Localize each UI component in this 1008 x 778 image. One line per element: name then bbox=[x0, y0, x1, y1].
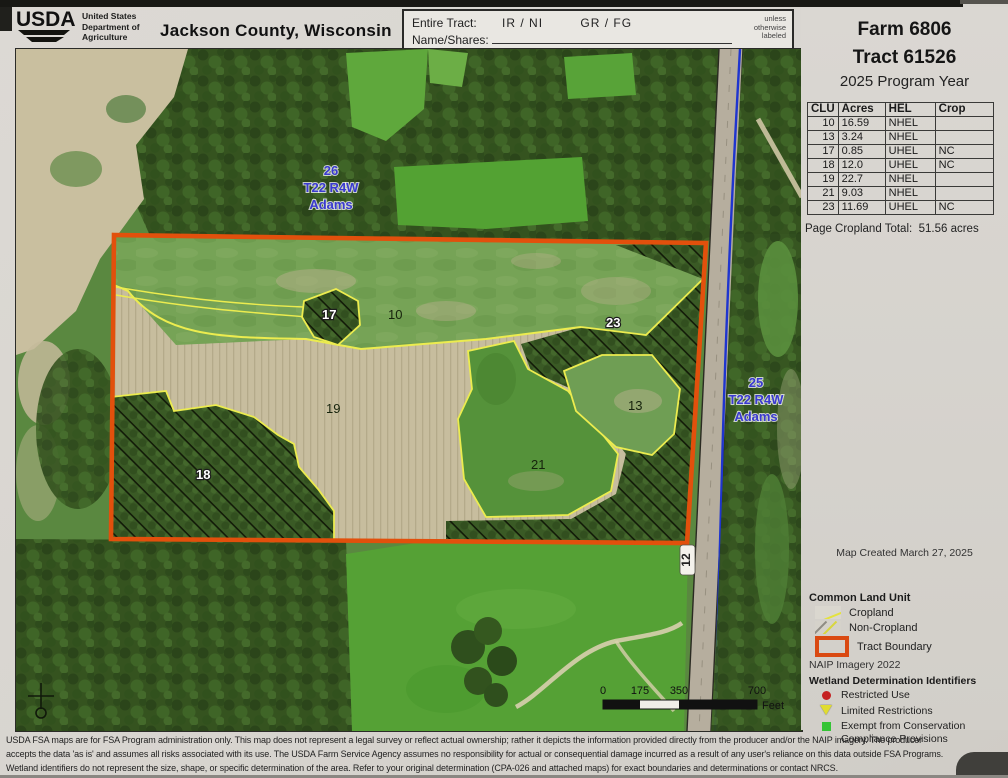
clu-table: CLU Acres HEL Crop 1016.59NHEL 133.24NHE… bbox=[807, 102, 994, 215]
dept-line-1: United States bbox=[82, 11, 140, 22]
naip-imagery-note: NAIP Imagery 2022 bbox=[809, 659, 1005, 671]
legend-item-cropland: Cropland bbox=[815, 606, 1005, 619]
sidebar: Farm 6806 Tract 61526 2025 Program Year … bbox=[801, 7, 1008, 730]
legend-item-non-cropland: Non-Cropland bbox=[815, 621, 1005, 634]
clu-row: 219.03NHEL bbox=[808, 187, 994, 201]
legend-clu-title: Common Land Unit bbox=[809, 592, 1005, 604]
page-cropland-total: Page Cropland Total: 51.56 acres bbox=[805, 223, 979, 235]
photo-edge-top bbox=[0, 0, 963, 7]
county-title: Jackson County, Wisconsin bbox=[160, 21, 392, 41]
col-acres: Acres bbox=[838, 103, 885, 117]
disclaimer-line-2: accepts the data 'as is' and assumes all… bbox=[6, 748, 1006, 762]
svg-text:Adams: Adams bbox=[309, 197, 352, 212]
field-north-2 bbox=[394, 157, 588, 229]
usda-dept-lines: United States Department of Agriculture bbox=[82, 11, 140, 43]
forest-southwest bbox=[16, 539, 354, 731]
svg-text:Adams: Adams bbox=[734, 409, 777, 424]
header: USDA United States Department of Agricul… bbox=[0, 7, 800, 48]
aerial-map-svg: 12 26 T22 R4W Adams 25 T22 R4W Adams 10 … bbox=[16, 49, 802, 731]
disclaimer: USDA FSA maps are for FSA Program admini… bbox=[6, 734, 1006, 776]
field-label-21: 21 bbox=[531, 457, 545, 472]
non-cropland-swatch bbox=[815, 621, 841, 634]
usda-logo-text: USDA bbox=[16, 8, 76, 31]
field-label-18: 18 bbox=[196, 467, 210, 482]
col-hel: HEL bbox=[885, 103, 935, 117]
cropland-label: Cropland bbox=[849, 607, 894, 619]
tract-number: Tract 61526 bbox=[801, 47, 1008, 69]
legend-item-limited-restrictions: Limited Restrictions bbox=[819, 705, 1005, 718]
clu-row: 170.85UHELNC bbox=[808, 145, 994, 159]
name-shares-label: Name/Shares: bbox=[412, 33, 489, 47]
aerial-map: 12 26 T22 R4W Adams 25 T22 R4W Adams 10 … bbox=[15, 48, 803, 732]
svg-text:350: 350 bbox=[670, 685, 688, 697]
dept-line-2: Department of bbox=[82, 22, 140, 33]
scale-unit-label: Feet bbox=[762, 700, 784, 712]
limited-restrictions-triangle-icon bbox=[819, 705, 833, 718]
svg-text:T22 R4W: T22 R4W bbox=[304, 180, 360, 195]
col-crop: Crop bbox=[935, 103, 993, 117]
svg-text:700: 700 bbox=[748, 685, 766, 697]
disclaimer-line-1: USDA FSA maps are for FSA Program admini… bbox=[6, 734, 1006, 748]
restricted-use-label: Restricted Use bbox=[841, 689, 910, 701]
road-12-label: 12 bbox=[679, 553, 693, 567]
clu-row: 2311.69UHELNC bbox=[808, 201, 994, 215]
tract-boundary-swatch bbox=[815, 636, 849, 657]
field-label-13: 13 bbox=[628, 398, 642, 413]
svg-text:T22 R4W: T22 R4W bbox=[729, 392, 785, 407]
disclaimer-line-3: Wetland identifiers do not represent the… bbox=[6, 762, 1006, 776]
clu-row: 1016.59NHEL bbox=[808, 117, 994, 131]
dept-line-3: Agriculture bbox=[82, 32, 140, 43]
tract-boundary-label: Tract Boundary bbox=[857, 641, 932, 653]
non-cropland-label: Non-Cropland bbox=[849, 622, 917, 634]
field-label-10: 10 bbox=[388, 307, 402, 322]
svg-text:0: 0 bbox=[600, 685, 606, 697]
legend-item-tract-boundary: Tract Boundary bbox=[815, 636, 1005, 657]
clu-table-header-row: CLU Acres HEL Crop bbox=[808, 103, 994, 117]
usda-logo: USDA bbox=[16, 8, 76, 48]
clu-row: 1812.0UHELNC bbox=[808, 159, 994, 173]
exempt-square-icon bbox=[819, 720, 833, 734]
entire-tract-row: Entire Tract: IR / NI GR / FG bbox=[412, 16, 632, 30]
name-shares-row: Name/Shares: bbox=[412, 32, 782, 47]
usda-logo-swoosh bbox=[18, 30, 70, 35]
field-label-17: 17 bbox=[322, 307, 336, 322]
tract-codes-gr-fg: GR / FG bbox=[580, 16, 632, 30]
legend: Common Land Unit Cropland Non-Cropland T… bbox=[809, 592, 1005, 748]
svg-text:26: 26 bbox=[324, 163, 338, 178]
limited-restrictions-label: Limited Restrictions bbox=[841, 705, 933, 717]
tract-codes-ir-ni: IR / NI bbox=[502, 16, 543, 30]
clu-row: 133.24NHEL bbox=[808, 131, 994, 145]
entire-tract-box: Entire Tract: IR / NI GR / FG Name/Share… bbox=[402, 9, 794, 53]
photo-edge-top-right bbox=[960, 0, 1008, 4]
col-clu: CLU bbox=[808, 103, 839, 117]
name-shares-blank-line bbox=[492, 32, 732, 44]
svg-text:25: 25 bbox=[749, 375, 763, 390]
field-label-19: 19 bbox=[326, 401, 340, 416]
cropland-swatch bbox=[815, 606, 841, 619]
map-created-date: Map Created March 27, 2025 bbox=[801, 547, 1008, 559]
legend-item-restricted-use: Restricted Use bbox=[819, 689, 1005, 703]
fsa-map-page: USDA United States Department of Agricul… bbox=[0, 0, 1008, 778]
field-label-23: 23 bbox=[606, 315, 620, 330]
program-year: 2025 Program Year bbox=[801, 73, 1008, 90]
restricted-use-dot-icon bbox=[819, 689, 833, 703]
clu-row: 1922.7NHEL bbox=[808, 173, 994, 187]
road-12-marker: 12 bbox=[679, 545, 695, 575]
svg-text:175: 175 bbox=[631, 685, 649, 697]
entire-tract-label: Entire Tract: bbox=[412, 16, 477, 30]
wetland-identifiers-title: Wetland Determination Identifiers bbox=[809, 675, 1005, 687]
unless-otherwise-labeled-note: unless otherwise labeled bbox=[754, 15, 786, 41]
farm-number: Farm 6806 bbox=[801, 19, 1008, 41]
